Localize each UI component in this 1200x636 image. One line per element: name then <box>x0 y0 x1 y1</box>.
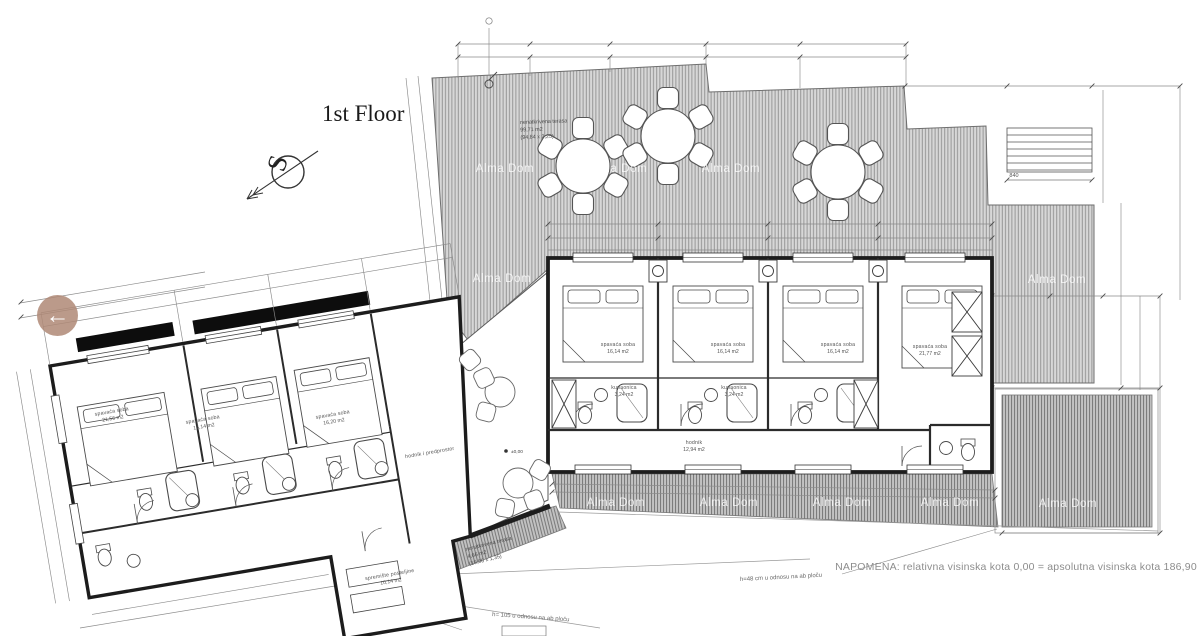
watermark-text: Alma Dom <box>473 273 531 285</box>
chair <box>658 88 679 109</box>
watermark-text: Alma Dom <box>589 163 647 175</box>
dim-tick <box>19 300 24 305</box>
bed <box>201 376 289 466</box>
room-area: 16,14 m2 <box>717 349 739 355</box>
watermark-text: Alma Dom <box>587 497 645 509</box>
watermark-text: Alma Dom <box>921 497 979 509</box>
sink <box>815 389 828 402</box>
watermark-text: Alma Dom <box>813 497 871 509</box>
toilet <box>962 444 975 461</box>
round-table <box>811 145 865 199</box>
room-label: kupaonica3,24 m2 <box>611 385 636 398</box>
room-name: hodnik <box>686 440 703 446</box>
watermark-text: Alma Dom <box>1039 498 1097 510</box>
toilet <box>689 407 702 424</box>
watermark-text: Alma Dom <box>1028 274 1086 286</box>
compass-letter: S <box>261 151 294 175</box>
watermark-text: Alma Dom <box>702 163 760 175</box>
toilet <box>799 407 812 424</box>
bed <box>294 358 382 448</box>
room-name: kupaonica <box>611 385 636 391</box>
level-marker-dot <box>504 449 508 453</box>
toilet <box>579 407 592 424</box>
gallery-prev-button[interactable]: ← <box>37 295 78 336</box>
room-area: 3,24 m2 <box>725 392 744 398</box>
terrace-label-line: 99,71 m2 <box>520 127 543 134</box>
left-building <box>7 244 512 636</box>
room-area: 12,94 m2 <box>683 447 705 453</box>
bed <box>673 286 753 362</box>
room-area: 16,14 m2 <box>607 349 629 355</box>
level-marker-text: ±0,00 <box>511 449 523 455</box>
note-napomena: NAPOMENA: relativna visinska kota 0,00 =… <box>835 561 1197 573</box>
room-name: kupaonica <box>721 385 746 391</box>
bench <box>502 626 546 636</box>
chair <box>828 200 849 221</box>
chair <box>573 194 594 215</box>
terrace-label-line: (94,84 x 2,25) <box>520 134 554 141</box>
round-table <box>641 109 695 163</box>
sink <box>705 389 718 402</box>
room-area: 16,14 m2 <box>827 349 849 355</box>
lounge-chair <box>495 498 516 519</box>
chair <box>658 164 679 185</box>
dim-840: 840 <box>1009 173 1018 179</box>
note-h48: h=48 cm u odnosu na ab ploču <box>740 573 822 583</box>
room-area: 3,24 m2 <box>615 392 634 398</box>
terrace-edge-line <box>452 559 810 574</box>
note-h105: h= 105 u odnosu na ab ploču <box>492 612 570 623</box>
room-area: 21,77 m2 <box>919 351 941 357</box>
room-name: spavaća soba <box>601 342 635 348</box>
room-name: spavaća soba <box>821 342 855 348</box>
floorplan-drawing: S 1st Floor NAPOMENA: relativna visinska… <box>0 0 1200 636</box>
watermark-text: Alma Dom <box>700 497 758 509</box>
sink <box>940 442 953 455</box>
bed <box>783 286 863 362</box>
room-name: spavaća soba <box>913 344 947 350</box>
stairs <box>1007 128 1092 180</box>
right-building <box>548 253 992 474</box>
sink <box>595 389 608 402</box>
chair <box>573 118 594 139</box>
chair <box>828 124 849 145</box>
dim-tick <box>19 315 24 320</box>
page-title: 1st Floor <box>322 101 405 126</box>
floorplan-image: S 1st Floor NAPOMENA: relativna visinska… <box>0 0 1200 636</box>
room-name: spavaća soba <box>711 342 745 348</box>
room-label: hodnik12,94 m2 <box>683 440 705 453</box>
bed <box>563 286 643 362</box>
watermark-text: Alma Dom <box>476 163 534 175</box>
room-label: kupaonica3,24 m2 <box>721 385 746 398</box>
